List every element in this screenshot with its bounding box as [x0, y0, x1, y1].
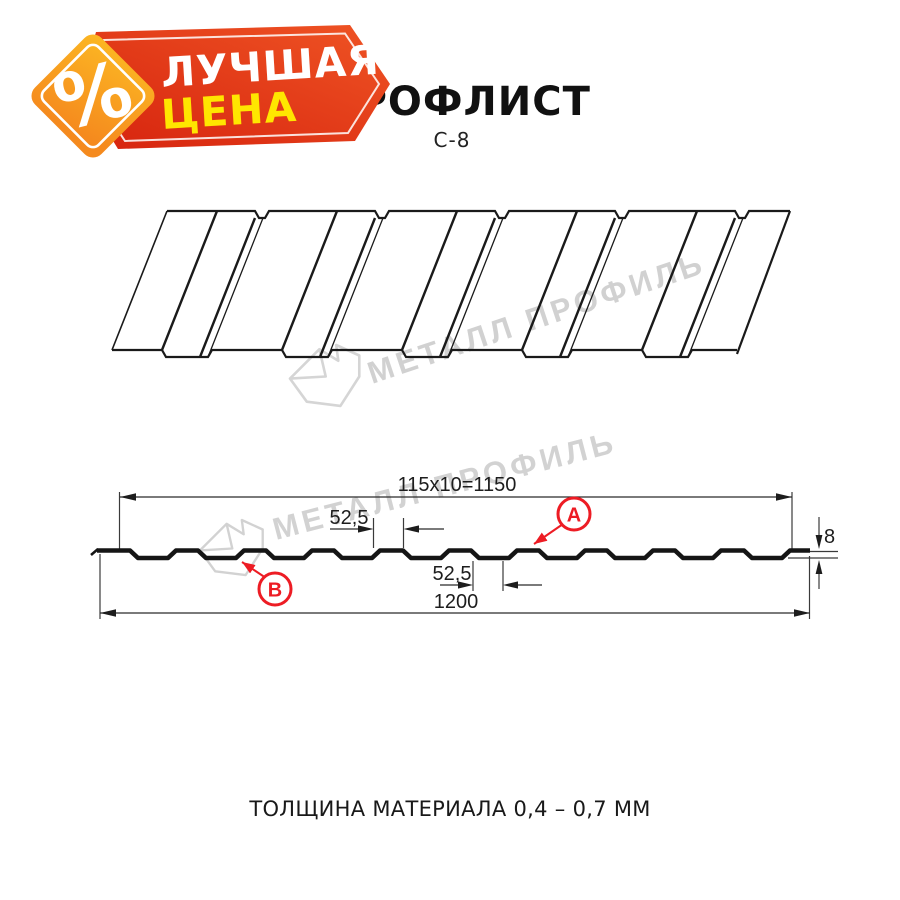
- watermark-house-icon: [200, 520, 263, 575]
- dim-pitch-bottom-label: 52,5: [433, 563, 472, 585]
- badge-line2: ЦЕНА: [160, 83, 299, 139]
- watermark-house-icon: [290, 345, 359, 406]
- callout-b-letter: В: [268, 580, 282, 602]
- dim-pitch-top-label: 52,5: [330, 507, 369, 529]
- dim-total-width-label: 1200: [434, 591, 479, 613]
- dim-height-label: 8: [824, 526, 835, 548]
- profile-section-line: [91, 549, 810, 558]
- dim-working-width-label: 115x10=1150: [398, 474, 517, 496]
- page: { "badge": { "percent_symbol": "%", "lin…: [0, 0, 900, 900]
- best-price-badge: ЛУЧШАЯ ЦЕНА %: [16, 12, 408, 188]
- callout-a-letter: А: [567, 505, 581, 527]
- sheet-3d-sketch: МЕТАЛЛ ПРОФИЛЬ: [112, 211, 790, 406]
- callout-a: А: [534, 498, 590, 544]
- thickness-note: ТОЛЩИНА МАТЕРИАЛА 0,4 – 0,7 ММ: [249, 797, 650, 821]
- profile-model-label: С-8: [434, 128, 471, 152]
